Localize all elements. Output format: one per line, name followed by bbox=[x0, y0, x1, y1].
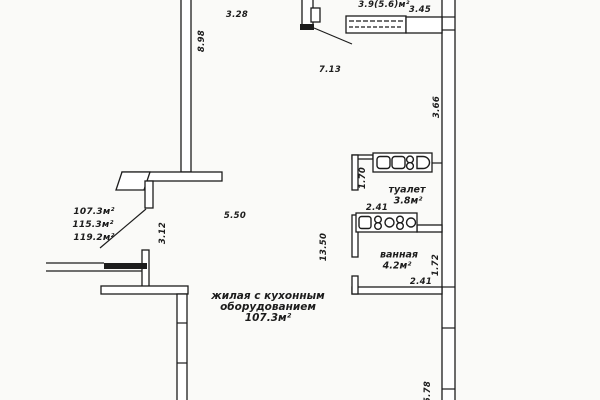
dim-right-lower: 5.78 bbox=[423, 381, 433, 400]
balcony-area-label: 3.9(5.6)м² bbox=[358, 0, 410, 10]
dim-mid-width: 5.50 bbox=[224, 211, 246, 221]
dim-niche-height: 3.12 bbox=[158, 222, 168, 244]
dim-right-upper: 3.66 bbox=[432, 96, 442, 118]
floor-plan-linework bbox=[0, 0, 600, 400]
area-total-3: 119.2м² bbox=[73, 233, 114, 243]
entry-door-icon bbox=[300, 0, 352, 44]
dim-hall-width: 7.13 bbox=[319, 65, 341, 75]
left-outer-wall bbox=[181, 0, 191, 172]
dim-toilet-depth: 1.70 bbox=[358, 167, 368, 189]
area-total-1: 107.3м² bbox=[73, 207, 114, 217]
right-outer-wall bbox=[442, 0, 455, 400]
dim-balcony-width: 3.45 bbox=[409, 5, 431, 15]
bathroom-label: ванная bbox=[380, 250, 418, 261]
lower-left-walls bbox=[46, 263, 188, 400]
bathroom-fixtures-icon bbox=[356, 213, 417, 232]
toilet-fixtures-icon bbox=[373, 153, 432, 172]
balcony-partition-icon bbox=[346, 16, 442, 33]
dim-top-width: 3.28 bbox=[226, 10, 248, 20]
dim-toilet-width: 2.41 bbox=[366, 203, 388, 213]
floor-plan-canvas: 3.28 8.98 7.13 3.9(5.6)м² 3.45 3.66 5.50… bbox=[0, 0, 600, 400]
dim-mid-height: 13.50 bbox=[319, 233, 329, 261]
toilet-label: туалет bbox=[388, 185, 425, 196]
toilet-area: 3.8м² bbox=[394, 196, 423, 207]
dim-bath-width: 2.41 bbox=[410, 277, 432, 287]
dim-left-height: 8.98 bbox=[197, 30, 207, 52]
area-total-2: 115.3м² bbox=[72, 220, 113, 230]
living-area: 107.3м² bbox=[245, 312, 291, 324]
dim-bath-depth: 1.72 bbox=[431, 254, 441, 276]
bathroom-area: 4.2м² bbox=[383, 261, 412, 272]
